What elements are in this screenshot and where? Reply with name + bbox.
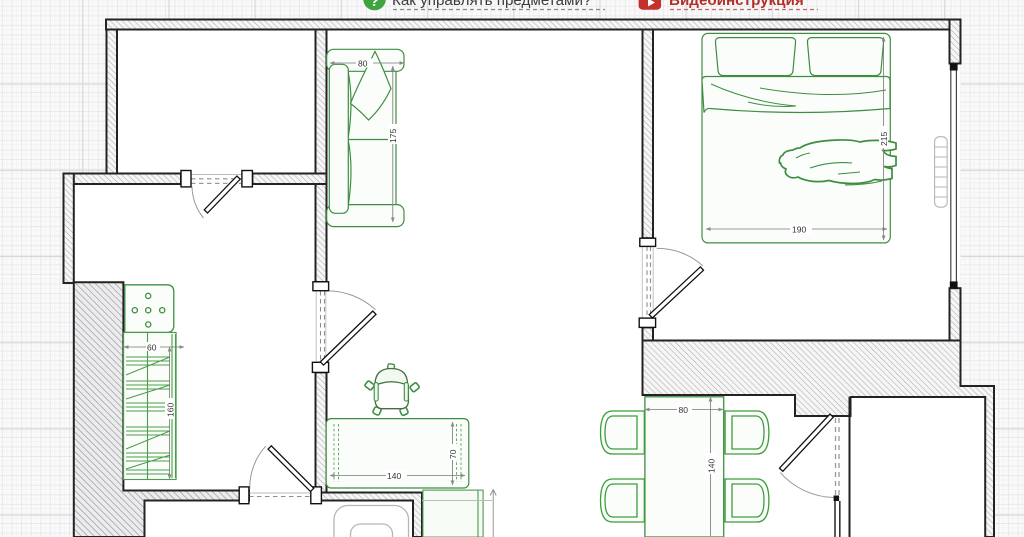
svg-text:Видеоинструкция: Видеоинструкция — [669, 0, 804, 9]
svg-text:175: 175 — [388, 129, 398, 143]
svg-text:?: ? — [370, 0, 379, 10]
svg-text:140: 140 — [387, 471, 401, 481]
svg-text:80: 80 — [358, 59, 368, 69]
svg-text:190: 190 — [792, 225, 806, 235]
svg-text:70: 70 — [448, 449, 458, 459]
svg-text:140: 140 — [707, 459, 717, 473]
svg-text:60: 60 — [147, 343, 157, 353]
svg-text:80: 80 — [679, 405, 689, 415]
svg-text:160: 160 — [166, 403, 176, 417]
svg-text:215: 215 — [879, 132, 889, 146]
svg-text:Как управлять предметами?: Как управлять предметами? — [392, 0, 591, 9]
